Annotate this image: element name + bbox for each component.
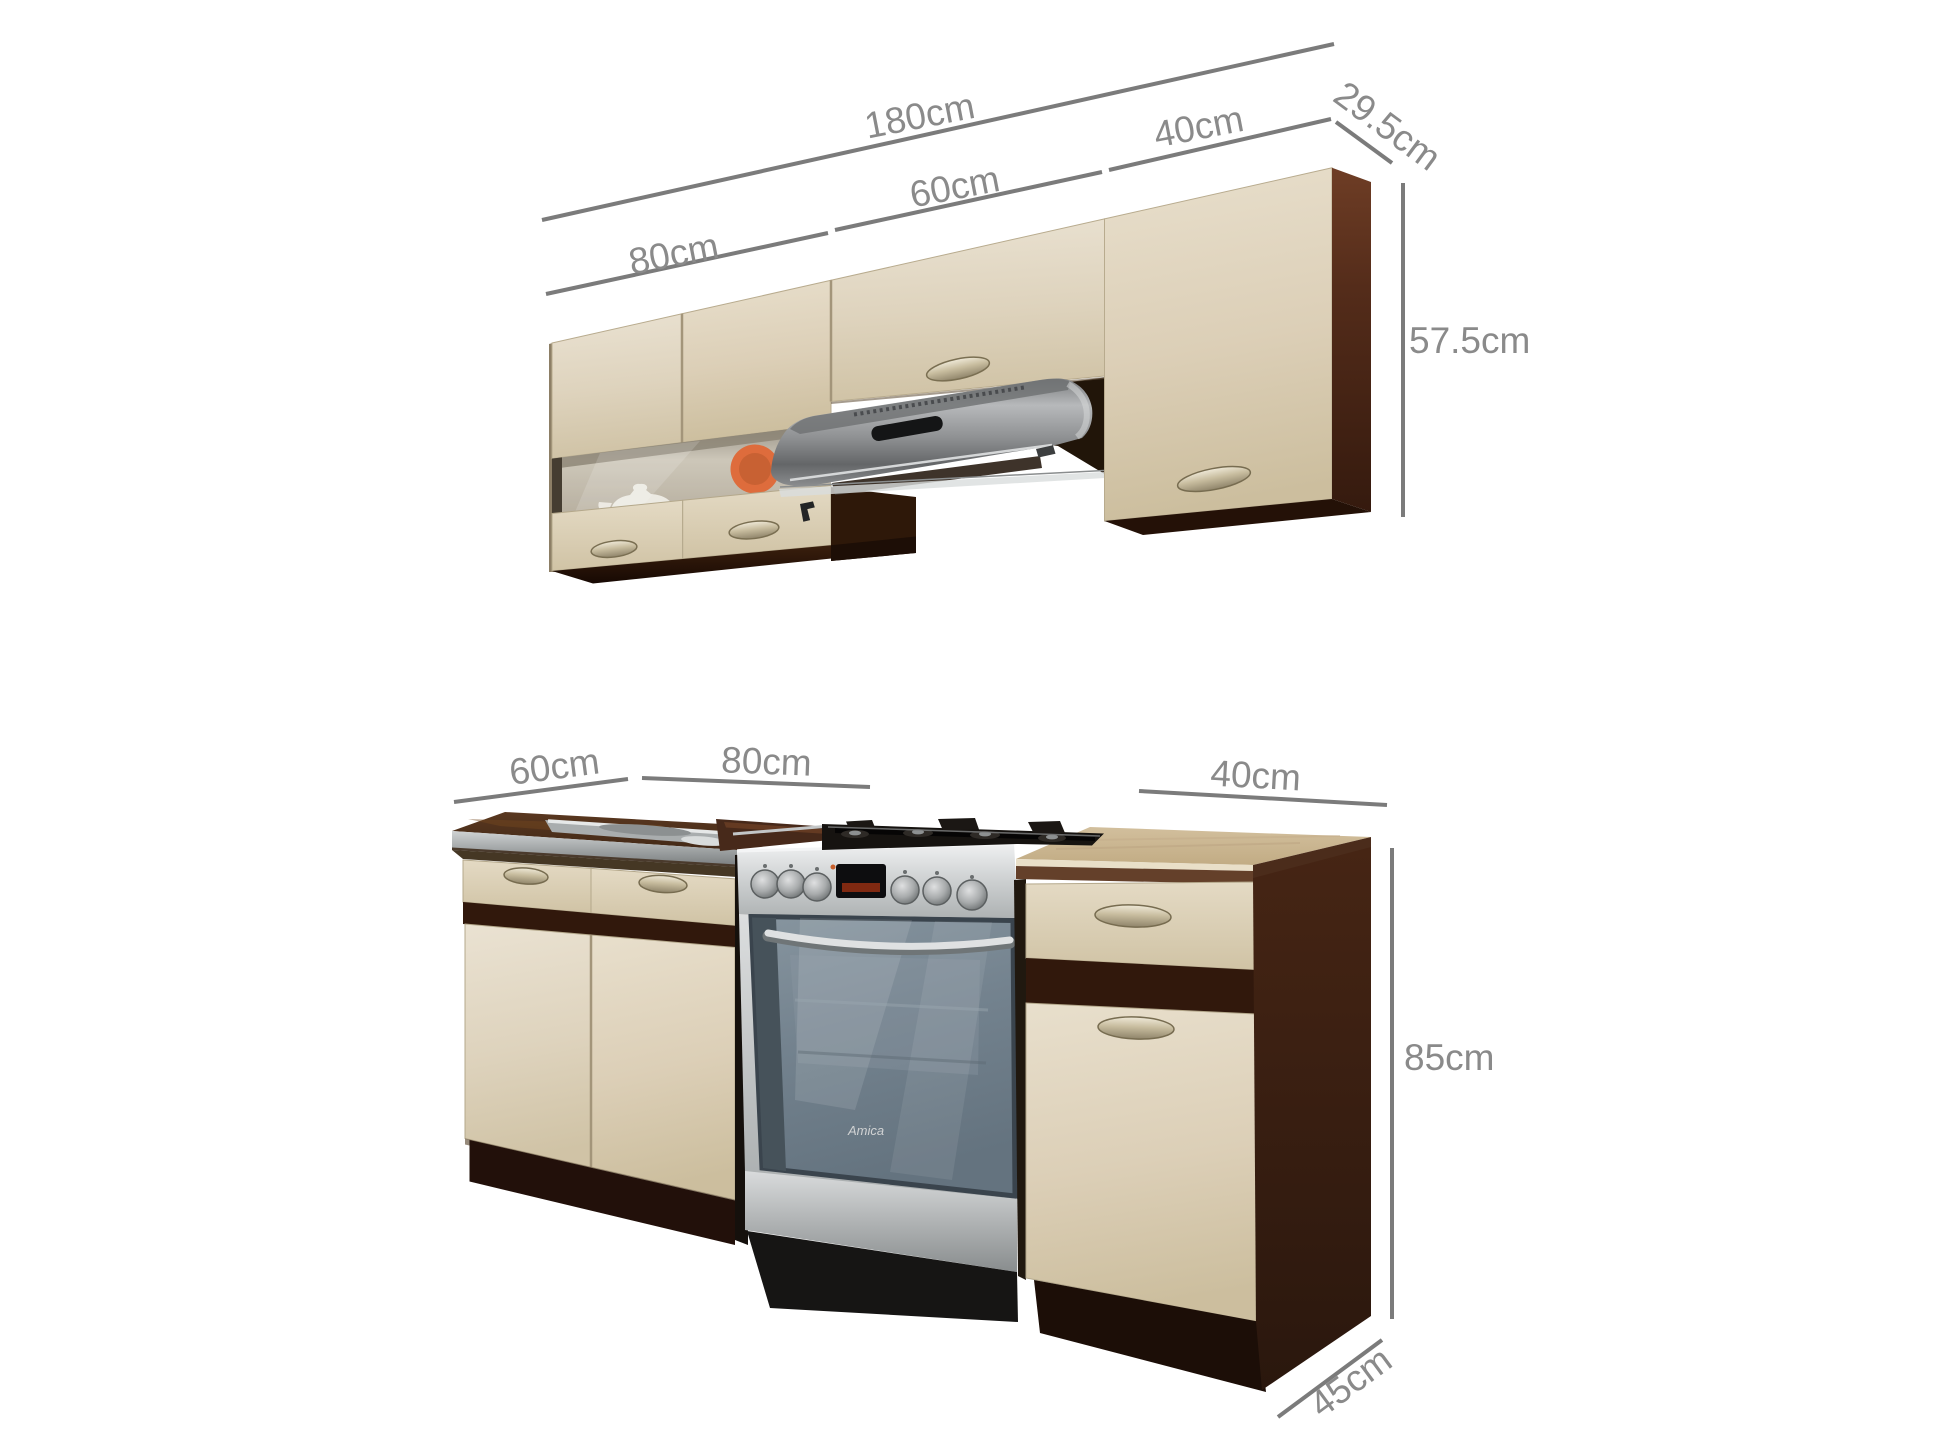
svg-text:Amica: Amica	[847, 1123, 884, 1138]
svg-text:85cm: 85cm	[1404, 1037, 1494, 1078]
svg-text:57.5cm: 57.5cm	[1409, 320, 1530, 361]
svg-text:40cm: 40cm	[1209, 753, 1302, 799]
svg-text:80cm: 80cm	[720, 739, 812, 783]
